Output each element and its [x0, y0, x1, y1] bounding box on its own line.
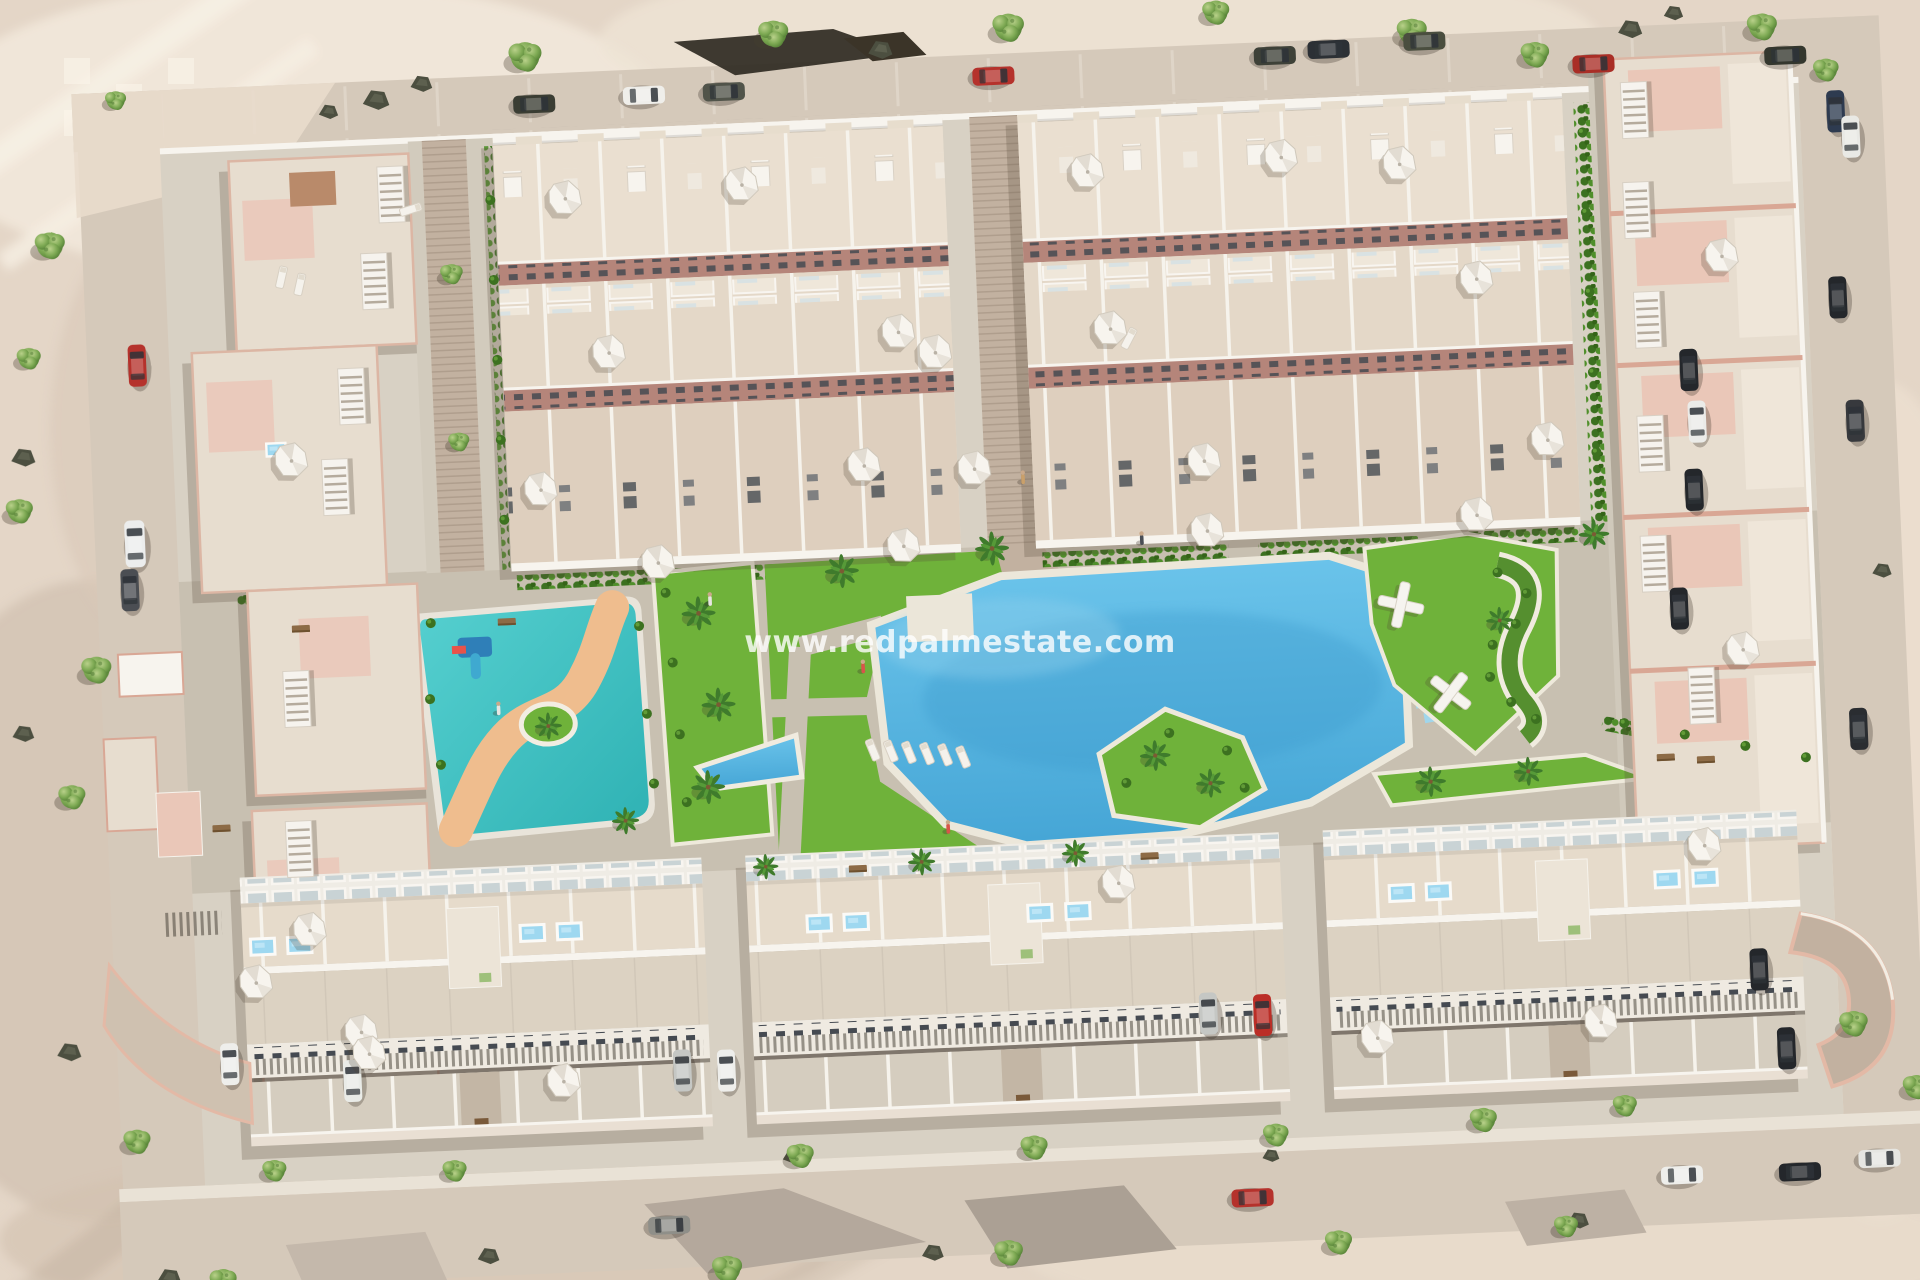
- watermark-text: www.redpalmestate.com: [744, 625, 1176, 660]
- roof-plunge-pool: [250, 938, 275, 955]
- roof-plunge-pool: [520, 924, 545, 941]
- roof-plunge-pool: [844, 913, 869, 930]
- roof-plunge-pool: [1066, 903, 1091, 920]
- roof-plunge-pool: [1028, 904, 1053, 921]
- site-plan-svg: www.redpalmestate.com: [0, 0, 1920, 1280]
- roof-plunge-pool: [807, 915, 832, 932]
- roof-stair: [322, 458, 355, 515]
- roof-stair: [285, 820, 318, 877]
- bench: [498, 618, 516, 626]
- aerial-development-render: www.redpalmestate.com: [0, 0, 1920, 1280]
- villa-column-east: [1593, 51, 1827, 861]
- kids-splash-pool: [412, 596, 656, 844]
- roof-stair: [1640, 535, 1673, 592]
- bench: [292, 625, 310, 633]
- roof-plunge-pool: [557, 923, 582, 940]
- bottom-row-east: [1313, 810, 1809, 1113]
- roof-stair: [1688, 667, 1721, 724]
- bottom-row-west: [230, 857, 714, 1159]
- roof-stair: [338, 368, 371, 425]
- bottom-row-center: [735, 832, 1291, 1137]
- roof-plunge-pool: [1655, 871, 1680, 888]
- roof-plunge-pool: [1693, 869, 1718, 886]
- bench: [849, 865, 867, 873]
- roof-stair: [1620, 81, 1653, 138]
- roof-plunge-pool: [1426, 883, 1451, 900]
- roof-stair: [283, 670, 316, 727]
- roof-stair: [1623, 181, 1656, 238]
- roof-stair: [361, 252, 394, 309]
- bench: [212, 825, 230, 833]
- bench: [1657, 753, 1675, 761]
- bench: [1697, 756, 1715, 764]
- roof-stair: [1637, 415, 1670, 472]
- bench: [1140, 852, 1158, 860]
- roof-plunge-pool: [1389, 884, 1414, 901]
- roof-stair: [1633, 291, 1666, 348]
